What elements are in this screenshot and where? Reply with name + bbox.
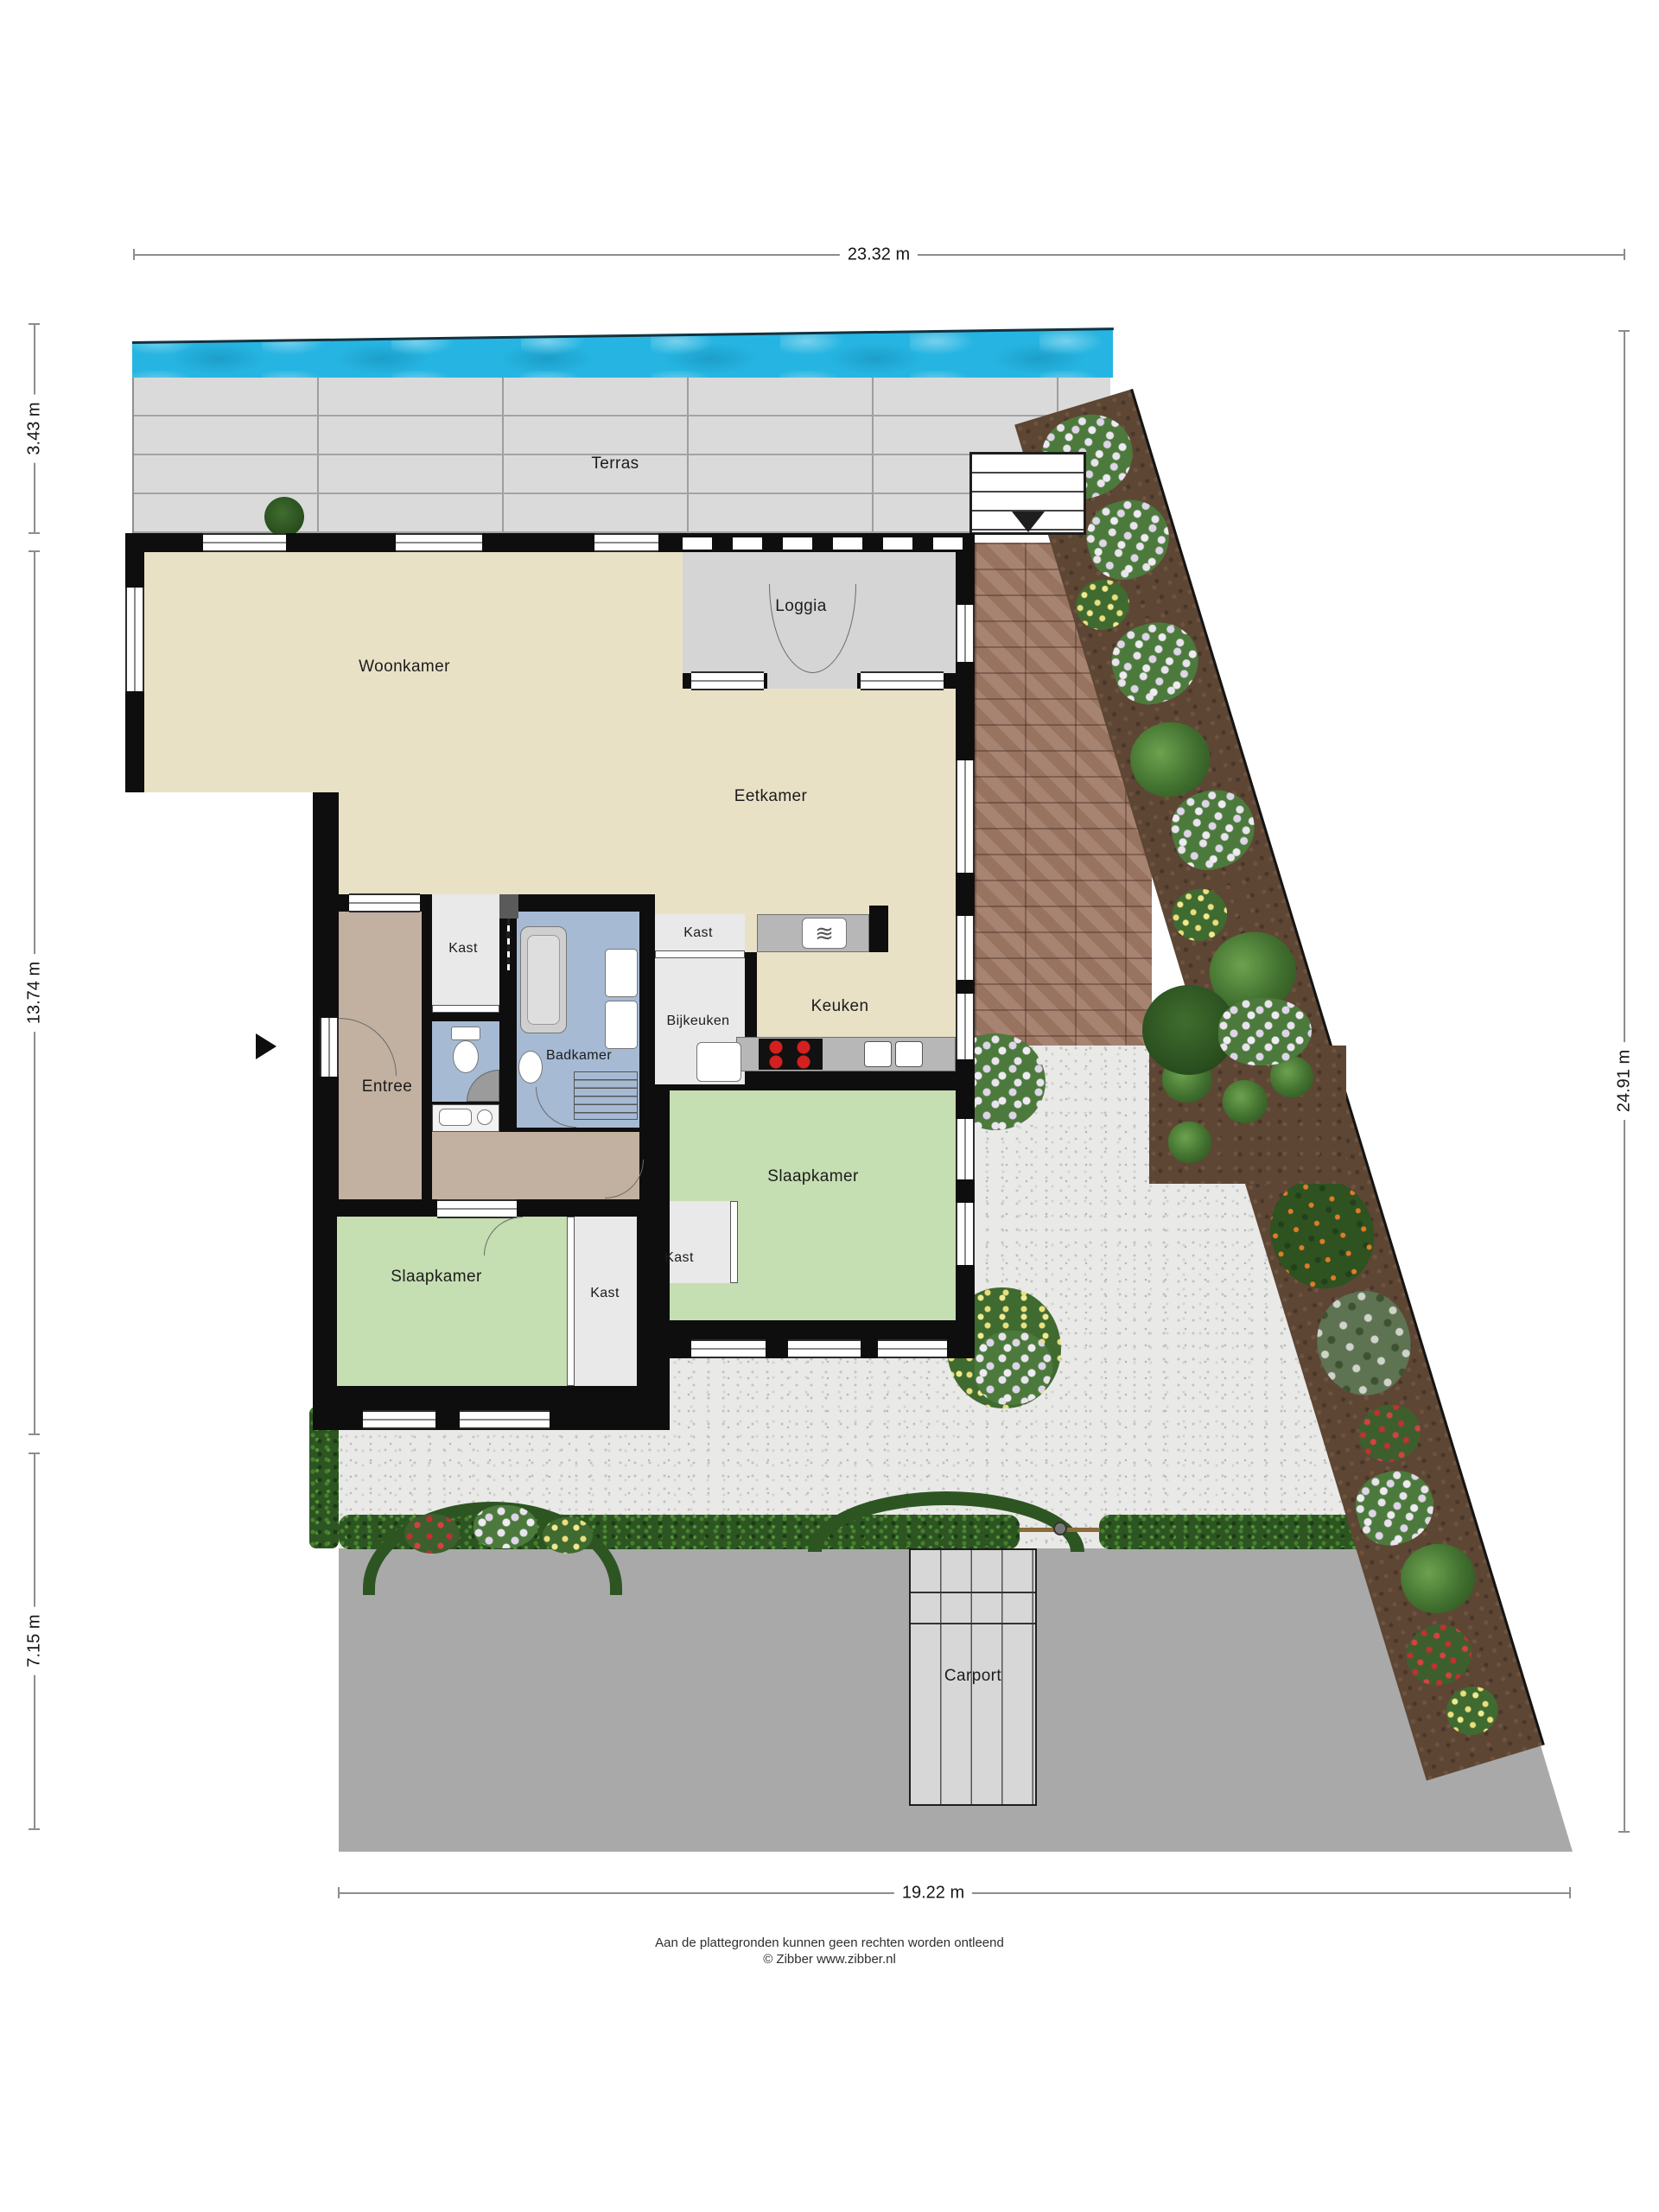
meter-cupboard (499, 894, 518, 918)
kast-keuken-label: Kast (683, 925, 713, 941)
towel-radiator (574, 1071, 638, 1120)
washbasin (439, 1109, 472, 1126)
meter-cupboard-dashed-front (507, 918, 510, 970)
window (788, 1339, 861, 1358)
closet-left-wall (422, 894, 432, 1199)
white-flower-bush (1103, 612, 1208, 713)
yellow-flower-patch (1440, 1680, 1504, 1741)
agave-plant (1168, 1122, 1211, 1163)
kast-slaapkamer-right-label: Kast (664, 1250, 694, 1266)
white-flower-bush (1077, 490, 1179, 588)
window (861, 671, 944, 690)
dimension-right-label: 24.91 m (1615, 1042, 1635, 1120)
window (956, 916, 975, 980)
red-flower-patch (404, 1514, 460, 1554)
red-flower-patch (1351, 1397, 1427, 1470)
bijkeuken-label: Bijkeuken (667, 1014, 730, 1029)
scullery-right-wall (745, 952, 757, 1039)
footer: Aan de plattegronden kunnen geen rechten… (0, 1935, 1659, 1967)
groundcover-patch (1305, 1281, 1424, 1407)
boiler-unit (696, 1042, 741, 1082)
entree-label: Entree (362, 1077, 412, 1096)
window (125, 588, 144, 691)
badkamer-label: Badkamer (546, 1048, 612, 1064)
washbasin (605, 949, 638, 997)
window (437, 1199, 517, 1218)
window (594, 533, 658, 552)
carport-label: Carport (944, 1667, 1001, 1686)
window (396, 533, 482, 552)
washbasin (605, 1001, 638, 1049)
footer-copyright: © Zibber www.zibber.nl (0, 1952, 1659, 1967)
sliding-door (567, 1217, 575, 1386)
window (956, 994, 975, 1059)
yellow-flower-patch (543, 1517, 593, 1554)
closet-bottom-wall (432, 1013, 499, 1021)
window (363, 1410, 435, 1429)
window (956, 1203, 975, 1265)
k-niche-label: K (505, 929, 512, 942)
gate-latch (1053, 1522, 1067, 1535)
stairs-down-arrow-icon (1012, 512, 1045, 532)
loggia-side-door (956, 605, 975, 662)
kast-slaapkamer-left-label: Kast (590, 1286, 620, 1301)
terrace-label: Terras (591, 454, 639, 474)
toilet-bowl (518, 1051, 543, 1084)
bedroom-left-floor (337, 1217, 570, 1386)
dimension-top-label: 23.32 m (840, 245, 918, 265)
sink-basin (864, 1041, 892, 1067)
eetkamer-label: Eetkamer (734, 787, 808, 806)
front-door (320, 1018, 339, 1077)
bathtub-inner (527, 935, 560, 1025)
entry-arrow-icon (256, 1033, 276, 1059)
window (349, 893, 420, 912)
red-flower-patch (1399, 1617, 1479, 1694)
dimension-left-bottom-label: 7.15 m (25, 1606, 45, 1675)
washbasin-round (477, 1109, 493, 1125)
kast-hal-label: Kast (448, 941, 478, 957)
bedroom-left-closet (570, 1217, 637, 1386)
sliding-door (432, 1005, 499, 1013)
yellow-flower-patch (1070, 573, 1135, 637)
oven-icon: ≋ (802, 918, 847, 949)
window (203, 533, 286, 552)
keuken-label: Keuken (811, 997, 869, 1016)
loggia-label: Loggia (775, 597, 826, 616)
white-flower-bush (1347, 1461, 1443, 1554)
shrub (1393, 1535, 1484, 1623)
floorplan-canvas: Terras C (0, 0, 1659, 2212)
cooktop (759, 1039, 823, 1070)
toilet-cistern (451, 1027, 480, 1040)
footer-disclaimer: Aan de plattegronden kunnen geen rechten… (0, 1935, 1659, 1950)
toilet-bowl (453, 1040, 479, 1073)
bedroom-right-closet (670, 1201, 736, 1283)
yellow-flower-patch (1166, 882, 1234, 948)
loggia-open-edge (683, 537, 975, 550)
hall-upper-floor (339, 773, 956, 912)
sliding-door (655, 950, 745, 958)
sliding-door (730, 1201, 738, 1283)
kitchen-wall-stub (869, 906, 888, 952)
window (878, 1339, 947, 1358)
window (691, 1339, 766, 1358)
slaapkamer-left-label: Slaapkamer (391, 1268, 481, 1287)
dimension-left-middle-label: 13.74 m (25, 954, 45, 1032)
berry-shrub (1258, 1166, 1388, 1301)
dimension-bottom-label: 19.22 m (894, 1884, 972, 1904)
terrace-tree (264, 497, 304, 537)
sink-basin (895, 1041, 923, 1067)
window (691, 671, 764, 690)
dimension-left-top-label: 3.43 m (25, 394, 45, 462)
window (956, 1119, 975, 1179)
corridor-floor (339, 1132, 639, 1199)
woonkamer-label: Woonkamer (359, 658, 450, 677)
loggia-door-gap (767, 673, 857, 689)
bathroom-top-wall (499, 894, 655, 912)
window (460, 1410, 550, 1429)
agave-plant (1223, 1080, 1268, 1123)
window (956, 760, 975, 873)
slaapkamer-right-label: Slaapkamer (767, 1167, 858, 1186)
